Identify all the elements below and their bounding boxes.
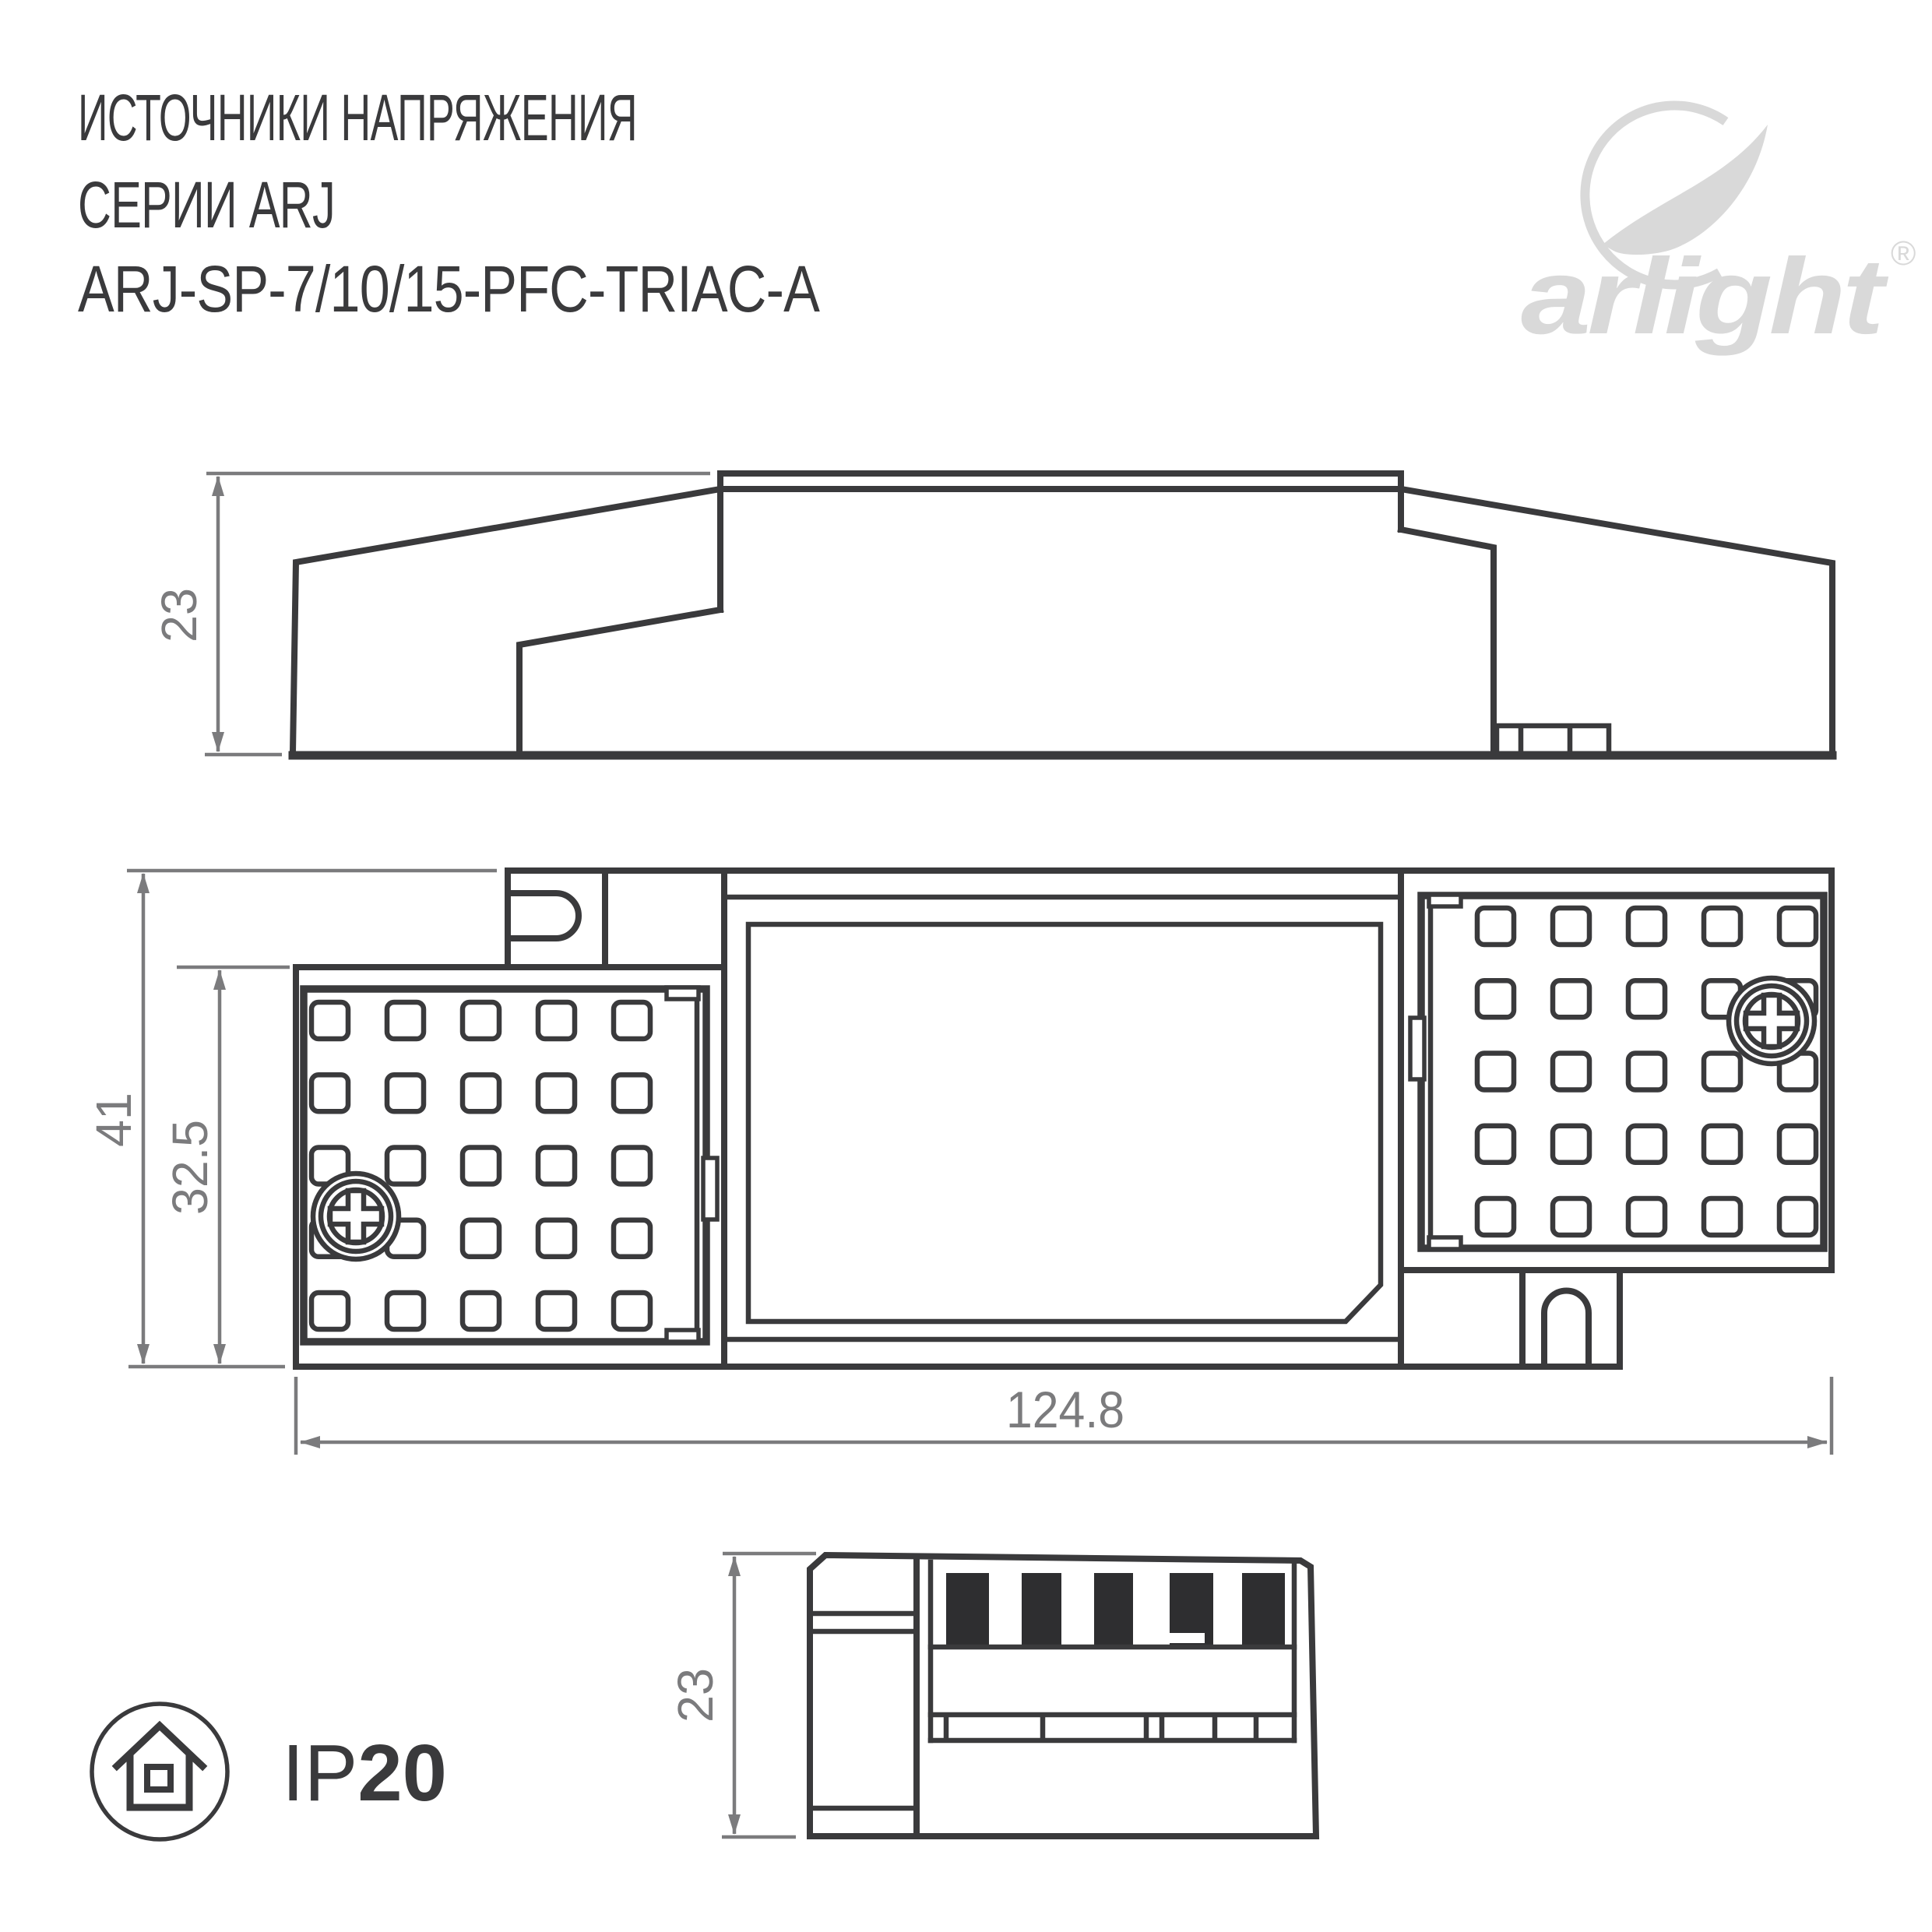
end-left-section-lines <box>810 1614 917 1808</box>
right-panel-clip-bottom <box>1429 1237 1461 1249</box>
ip20-house-icon <box>92 1704 227 1839</box>
vent-hole <box>614 1293 650 1329</box>
vent-hole <box>1704 1198 1740 1235</box>
vent-hole <box>1628 1054 1665 1090</box>
end-terminal-blocks <box>931 1573 1294 1647</box>
vent-hole <box>1553 908 1589 945</box>
vent-hole <box>387 1148 424 1184</box>
left-vent-panel <box>304 989 706 1342</box>
top-label-plate <box>748 924 1381 1321</box>
side-terminal-feet <box>1497 726 1609 752</box>
technical-drawing-canvas: ИСТОЧНИКИ НАПРЯЖЕНИЯ СЕРИИ ARJ ARJ-SP-7/… <box>0 0 1932 1932</box>
vent-hole <box>1477 908 1514 945</box>
arlight-logo: arlight ® <box>1521 105 1916 357</box>
end-dim-23: 23 <box>667 1554 816 1837</box>
vent-hole <box>387 1002 424 1039</box>
vent-hole <box>1704 1126 1740 1163</box>
right-panel-side-latch <box>1410 1018 1424 1079</box>
vent-hole <box>1628 1198 1665 1235</box>
vent-hole <box>1628 980 1665 1017</box>
vent-hole <box>1477 1054 1514 1090</box>
vent-hole <box>311 1293 348 1329</box>
title-line-3: ARJ-SP-7/10/15-PFC-TRIAC-A <box>78 252 820 326</box>
right-screw-icon <box>1729 978 1814 1064</box>
top-dim-41: 41 <box>86 871 497 1367</box>
side-dim-label: 23 <box>151 588 207 642</box>
top-right-ear-slot <box>1544 1291 1589 1367</box>
logo-swoosh-icon <box>1603 125 1768 255</box>
vent-hole <box>387 1293 424 1329</box>
left-vent-grid <box>311 1002 650 1329</box>
vent-hole <box>1704 1054 1740 1090</box>
side-dim-23: 23 <box>151 473 710 755</box>
vent-hole <box>614 1075 650 1111</box>
vent-hole <box>311 1002 348 1039</box>
title-line-1: ИСТОЧНИКИ НАПРЯЖЕНИЯ <box>78 81 637 154</box>
vent-hole <box>1477 1126 1514 1163</box>
vent-hole <box>614 1002 650 1039</box>
vent-hole <box>538 1002 575 1039</box>
right-panel-clip-top <box>1429 895 1461 906</box>
end-dim-label: 23 <box>667 1668 723 1723</box>
vent-hole <box>463 1002 499 1039</box>
ip-rating-text: IP20 <box>282 1728 447 1818</box>
end-outer-outline <box>810 1555 1316 1836</box>
vent-hole <box>1553 1126 1589 1163</box>
vent-hole <box>1477 1198 1514 1235</box>
vent-hole <box>538 1220 575 1257</box>
top-outer-outline <box>296 871 1832 1367</box>
dim41-label: 41 <box>86 1093 142 1147</box>
end-terminal-wire-slot <box>1135 1633 1205 1643</box>
vent-hole <box>387 1075 424 1111</box>
end-view: 23 <box>667 1554 1316 1837</box>
datasheet-page: ИСТОЧНИКИ НАПРЯЖЕНИЯ СЕРИИ ARJ ARJ-SP-7/… <box>0 0 1932 1932</box>
ip-rating-value: 20 <box>357 1728 447 1818</box>
top-left-ear-slot <box>508 893 579 938</box>
logo-registered-mark: ® <box>1891 234 1916 273</box>
vent-hole <box>614 1220 650 1257</box>
vent-hole <box>1477 980 1514 1017</box>
vent-hole <box>1553 1198 1589 1235</box>
vent-hole <box>538 1075 575 1111</box>
vent-hole <box>1779 1126 1816 1163</box>
side-inner-right <box>1401 530 1494 752</box>
left-panel-side-latch <box>703 1158 717 1219</box>
vent-hole <box>463 1220 499 1257</box>
vent-hole <box>538 1148 575 1184</box>
vent-hole <box>1704 908 1740 945</box>
left-panel-clip-top <box>667 987 699 999</box>
top-dim-32-5: 32.5 <box>162 967 290 1364</box>
top-dim-124-8: 124.8 <box>296 1377 1832 1455</box>
right-vent-panel <box>1421 896 1824 1248</box>
vent-hole <box>463 1075 499 1111</box>
ip-rating-prefix: IP <box>282 1728 357 1818</box>
vent-hole <box>1628 1126 1665 1163</box>
left-screw-icon <box>313 1174 399 1259</box>
vent-hole <box>311 1075 348 1111</box>
vent-hole <box>1553 1054 1589 1090</box>
vent-hole <box>1628 908 1665 945</box>
vent-hole <box>463 1293 499 1329</box>
side-profile-view: 23 <box>151 473 1832 755</box>
dim1248-label: 124.8 <box>1006 1381 1124 1438</box>
vent-hole <box>463 1148 499 1184</box>
vent-hole <box>1779 908 1816 945</box>
vent-hole <box>614 1148 650 1184</box>
side-right-slope <box>1401 489 1832 752</box>
logo-brand-text: arlight <box>1521 237 1889 357</box>
end-connector-strip <box>931 1715 1294 1740</box>
vent-hole <box>1553 980 1589 1017</box>
top-plan-view: 41 32.5 124.8 <box>86 871 1832 1455</box>
title-line-2: СЕРИИ ARJ <box>78 168 335 241</box>
vent-hole <box>538 1293 575 1329</box>
ip-rating-badge: IP20 <box>92 1704 447 1839</box>
right-vent-grid <box>1477 908 1816 1235</box>
left-panel-clip-bottom <box>667 1330 699 1342</box>
page-title: ИСТОЧНИКИ НАПРЯЖЕНИЯ СЕРИИ ARJ ARJ-SP-7/… <box>78 81 820 326</box>
vent-hole <box>1779 1198 1816 1235</box>
dim325-label: 32.5 <box>162 1120 218 1215</box>
side-inner-left <box>519 610 720 752</box>
